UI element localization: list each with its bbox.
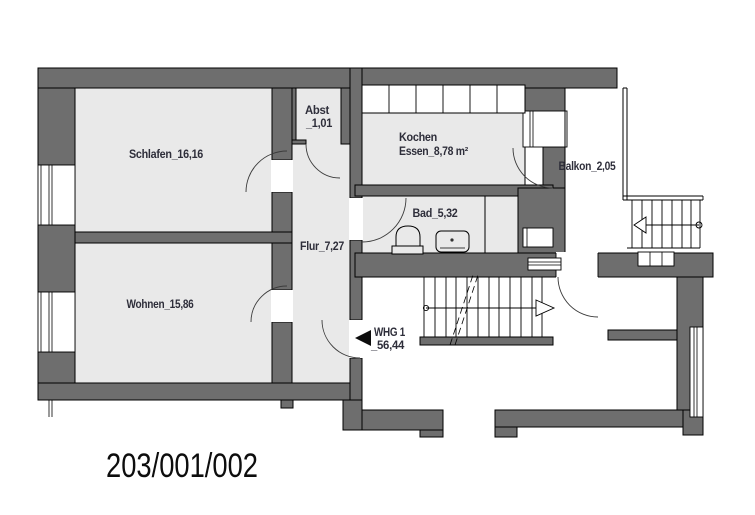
toilet-icon [396, 226, 420, 247]
wall [350, 68, 362, 198]
wall [420, 430, 443, 437]
window-bad [523, 228, 553, 247]
label-kochen: Kochen [399, 132, 437, 144]
floor-plan: Schlafen_16,16 Wohnen_15,86 Abst _1,01 F… [0, 0, 755, 515]
wall [38, 225, 75, 292]
wall [608, 330, 677, 340]
balcony-door [523, 111, 567, 147]
door-opening-schlafen [271, 160, 293, 192]
wall [495, 410, 683, 427]
label-bad: Bad_5,32 [413, 208, 458, 220]
window-wohnen [38, 292, 75, 352]
wall [38, 383, 362, 400]
window-right-wall [690, 327, 703, 417]
wall [281, 400, 293, 408]
wall [272, 243, 292, 290]
window-schlafen [38, 165, 75, 225]
wall [350, 358, 362, 400]
window-court-left [528, 258, 561, 270]
wall [272, 88, 292, 160]
label-wohnen: Wohnen_15,86 [127, 299, 194, 311]
label-abst: Abst [305, 105, 329, 117]
wall [272, 322, 292, 383]
door-opening-bad [349, 198, 363, 240]
wall [75, 232, 292, 243]
label-whg-area: _56,44 [370, 340, 405, 352]
wall [525, 88, 565, 113]
door-opening-wohnen [271, 290, 293, 322]
wall [38, 88, 75, 165]
plan-number: 203/001/002 [106, 447, 258, 485]
label-balkon: Balkon_2,05 [559, 161, 617, 173]
label-abst-area: _1,01 [305, 118, 333, 130]
room-wohnen [75, 243, 272, 383]
wall [341, 88, 350, 144]
label-kochen-area: Essen_8,78 m² [399, 146, 468, 158]
kitchen-counter [362, 85, 525, 113]
wall [272, 192, 292, 232]
wall [362, 410, 443, 430]
sink-drain [450, 238, 453, 241]
wall [292, 88, 296, 144]
wall [292, 140, 306, 144]
door-opening-stairwell [556, 252, 598, 278]
label-flur: Flur_7,27 [300, 241, 344, 253]
wall [350, 240, 362, 320]
wall [343, 400, 362, 430]
wall [495, 427, 517, 437]
toilet-base [392, 246, 423, 254]
window-court-right [638, 252, 674, 266]
label-schlafen: Schlafen_16,16 [129, 149, 203, 161]
wall [38, 68, 617, 88]
wall [420, 337, 553, 345]
label-whg-name: WHG 1 [374, 327, 406, 339]
